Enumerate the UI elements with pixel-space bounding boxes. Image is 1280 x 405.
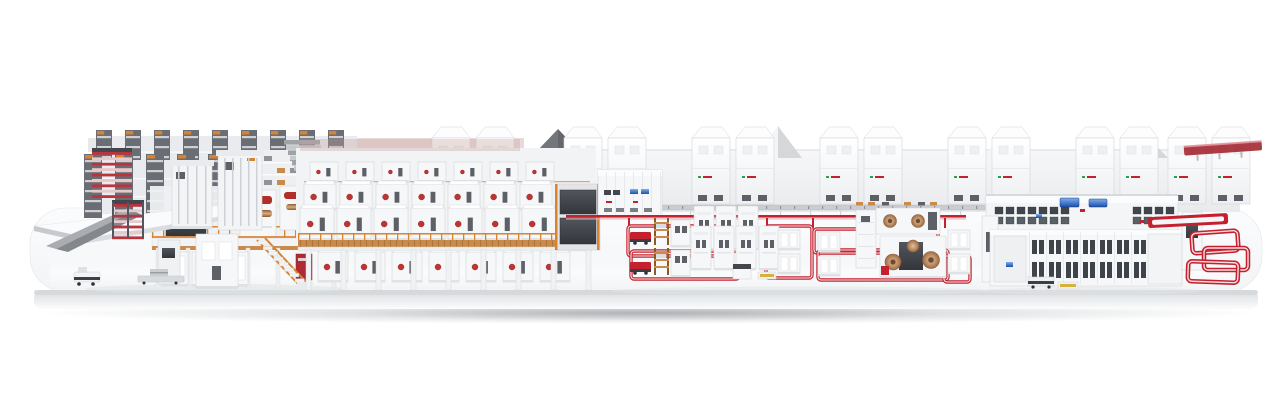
cabinet-roof (1168, 127, 1206, 138)
deck-tick (462, 240, 463, 247)
door-slot (1134, 240, 1139, 254)
module-slit (398, 168, 402, 176)
red-bank-stripe (92, 168, 132, 171)
deck-tick (468, 240, 469, 247)
rack-slat (184, 136, 198, 138)
module-slit (431, 192, 436, 203)
module-roof (306, 181, 334, 185)
cell-cabinet (818, 256, 840, 276)
cellB-mid-tower (856, 210, 876, 268)
cabinet-divider (948, 168, 986, 169)
cabinet-recess (886, 146, 895, 154)
door-slot (1056, 262, 1061, 278)
deck-tick (504, 240, 505, 247)
sled-wheel (143, 282, 146, 285)
conveyor-tick (948, 206, 949, 209)
module-roof (378, 181, 406, 185)
rack-orange-cap (178, 155, 186, 159)
rack-slat (147, 160, 163, 162)
shelf-item (264, 180, 272, 185)
railing-post (485, 233, 486, 242)
module-roof (339, 205, 369, 209)
deck-tick (360, 240, 361, 247)
agv-band (1028, 281, 1054, 284)
panel-seam (1097, 232, 1098, 284)
render-stage (0, 0, 1280, 405)
red-label (1140, 220, 1144, 223)
cell-tower (759, 226, 779, 270)
cabinet-vent (758, 195, 767, 201)
railing-post (419, 233, 420, 242)
hmi-screen-blue (641, 189, 649, 194)
cabinet-divider (1212, 168, 1250, 169)
panel-seam (1063, 232, 1064, 284)
red-bank-top-bar (92, 148, 132, 152)
panel-seam (1029, 232, 1030, 284)
module-red-valve (307, 221, 313, 227)
railing-post (364, 233, 365, 242)
module-red-valve (398, 264, 404, 270)
cabinet-seam (624, 172, 625, 214)
coil-winder-front (880, 236, 946, 278)
rack-slat (242, 146, 256, 148)
stair-step (263, 246, 272, 249)
logo-mark-red (1087, 176, 1096, 178)
walkway-post (1218, 153, 1220, 159)
window-cell (1039, 217, 1047, 224)
pallet-unit-2 (1058, 282, 1078, 289)
deck-tick (528, 240, 529, 247)
dark-panel (560, 218, 596, 244)
module-slit (542, 168, 546, 176)
module-red-valve (527, 194, 533, 200)
conveyor-tick (822, 206, 823, 209)
line-module (526, 162, 554, 182)
tower-window (861, 216, 870, 222)
deck-tick (432, 240, 433, 247)
cell-cabinet (778, 254, 800, 274)
rack-slat (147, 170, 163, 172)
finishing-back-header (986, 196, 1178, 203)
cabinet-recess (1175, 146, 1184, 154)
red-label (606, 201, 612, 203)
rack-orange-cap (329, 131, 336, 135)
panel-seam (1046, 232, 1047, 284)
module-red-valve (509, 264, 515, 270)
cabinet-roof (608, 127, 646, 138)
door-slot (1039, 262, 1044, 278)
rack-shelf-line (199, 151, 212, 153)
logo-mark-green (1082, 176, 1085, 178)
cabinet-roof (1076, 127, 1114, 138)
rack-orange-cap (242, 131, 249, 135)
support-leg (516, 250, 521, 290)
rack-shelf-line (133, 196, 146, 198)
rack-slat (213, 136, 227, 138)
cell-tower (736, 226, 756, 270)
logo-mark-red (1003, 176, 1012, 178)
red-bank-stripe (92, 179, 132, 182)
cabinet-recess (615, 146, 624, 154)
deck-tick (378, 240, 379, 247)
window-cell (1133, 217, 1141, 224)
agv-wheel (91, 282, 95, 286)
cabinet-roof (1212, 127, 1250, 138)
deck-tick (426, 240, 427, 247)
line-module (374, 208, 408, 240)
railing-post (331, 233, 332, 242)
stair-step (269, 252, 278, 255)
module-red-valve (388, 170, 392, 174)
module-red-valve (352, 170, 356, 174)
conveyor-tick (962, 206, 963, 209)
cell-tower (691, 226, 711, 270)
cabinet-recess (999, 146, 1008, 154)
logo-mark-red (1223, 176, 1232, 178)
door-slot (1141, 240, 1146, 254)
hmi-screen-blue (1060, 198, 1079, 207)
deck-tick (318, 240, 319, 247)
window-cell (1028, 217, 1036, 224)
red-pipe-drop (944, 218, 946, 228)
cabinet-recess (871, 146, 880, 154)
cabinet-vent (954, 195, 963, 201)
railing-post (518, 233, 519, 242)
door-slot (1141, 262, 1146, 278)
module-red-valve (324, 264, 330, 270)
module-red-valve (455, 194, 461, 200)
module-roof (450, 205, 480, 209)
logo-mark-red (1131, 176, 1140, 178)
deck-tick (444, 240, 445, 247)
red-bank-stripe (92, 190, 132, 193)
cabinet-vent (644, 208, 652, 212)
window-cell (1006, 207, 1014, 214)
stair-step (295, 279, 304, 282)
tower-slit (212, 266, 221, 280)
deck-tick (366, 240, 367, 247)
door-slot (1073, 262, 1078, 278)
logo-mark-green (742, 176, 745, 178)
module-base (485, 238, 519, 240)
rack-orange-cap (300, 131, 307, 135)
cabinet-body (864, 138, 902, 204)
module-red-valve (529, 221, 535, 227)
module-roof (524, 205, 554, 209)
cabinet-recess (699, 146, 708, 154)
panel-seam (1131, 232, 1132, 284)
sled-wheel (175, 282, 178, 285)
door-slot (1107, 240, 1112, 254)
deck-tick (414, 240, 415, 247)
red-bank-stripe (92, 195, 132, 198)
module-red-valve (435, 264, 441, 270)
rack-slat (97, 136, 111, 138)
cabinet-recess (1098, 146, 1107, 154)
module-slit (505, 218, 510, 231)
logo-mark-green (1218, 176, 1221, 178)
support-leg (586, 250, 591, 290)
logo-mark-green (826, 176, 829, 178)
module-red-valve (316, 170, 320, 174)
cabinet-recess (827, 146, 836, 154)
panel-seam (1080, 232, 1081, 284)
panel-seam (1114, 232, 1115, 284)
cabinet-recess (1014, 146, 1023, 154)
conveyor-tick (836, 206, 837, 209)
door-slot (1049, 240, 1054, 254)
railing-post (375, 233, 376, 242)
red-bank-post (127, 202, 129, 238)
stair-step (290, 273, 299, 276)
railing-post (298, 233, 299, 242)
railing-post (397, 233, 398, 242)
line-module (346, 162, 374, 182)
module-slit (326, 168, 330, 176)
module-slit (395, 192, 400, 203)
module-roof (342, 181, 370, 185)
module-base (374, 238, 408, 240)
cabinet-divider (1076, 168, 1114, 169)
railing-post (551, 233, 552, 242)
railing-post (408, 233, 409, 242)
module-slit (542, 218, 547, 231)
gantry-strut (196, 166, 198, 224)
support-leg (306, 250, 311, 290)
line-module (429, 252, 459, 282)
module-red-valve (418, 221, 424, 227)
rack-slat (155, 146, 169, 148)
cabinet-vent (1218, 195, 1227, 201)
gantry-strut (248, 158, 250, 226)
module-slit (470, 168, 474, 176)
orange-post (555, 184, 558, 250)
agv-wheel (77, 282, 81, 286)
door-slot (1117, 240, 1122, 254)
module-slit (506, 168, 510, 176)
railing-post (353, 233, 354, 242)
cabinet-recess (955, 146, 964, 154)
module-red-valve (361, 264, 367, 270)
cabinet-recess (630, 146, 639, 154)
logo-mark-green (954, 176, 957, 178)
shelf-item (277, 180, 285, 185)
process-line (296, 139, 600, 290)
cabinet-vent (698, 195, 707, 201)
cell-tower (714, 226, 734, 270)
module-roof (302, 205, 332, 209)
railing-post (463, 233, 464, 242)
gantry-detail (176, 172, 185, 179)
cabinet-divider (736, 168, 774, 169)
railing-post (474, 233, 475, 242)
cabinet-divider (820, 168, 858, 169)
railing-bar (298, 233, 590, 235)
module-red-valve (491, 194, 497, 200)
cabinet-seam (660, 172, 661, 214)
module-roof (522, 181, 550, 185)
finishing-line (982, 194, 1202, 289)
rack-orange-cap (155, 131, 162, 135)
cabinet-divider (692, 168, 730, 169)
red-unit (881, 266, 889, 275)
deck-tick (372, 240, 373, 247)
gantry-strut (178, 166, 180, 224)
module-slit (335, 261, 340, 274)
module-red-valve (344, 221, 350, 227)
door-slot (1124, 262, 1129, 278)
control-header (598, 170, 662, 176)
logo-mark-red (875, 176, 884, 178)
rack-orange-cap (209, 155, 217, 159)
cabinet-vent (886, 195, 895, 201)
rack-orange-cap (271, 131, 278, 135)
line-module (310, 162, 338, 182)
shelf-item (264, 156, 272, 161)
copper-coil (907, 240, 919, 252)
support-leg (341, 250, 346, 290)
railing-post (320, 233, 321, 242)
door-slot (1083, 262, 1088, 278)
cabinet-roof (992, 127, 1030, 138)
red-bank-post (142, 202, 144, 238)
conveyor-tick (808, 206, 809, 209)
railing-post (540, 233, 541, 242)
rack-slat (85, 200, 101, 202)
conveyor-tick (850, 206, 851, 209)
line-module (522, 208, 556, 240)
module-slit (467, 192, 472, 203)
cabinet-vent (714, 195, 723, 201)
logo-mark-green (870, 176, 873, 178)
cabinet-recess (1083, 146, 1092, 154)
module-slit (394, 218, 399, 231)
module-red-valve (381, 221, 387, 227)
rack-slat (271, 136, 285, 138)
rack-shelf-line (133, 178, 146, 180)
conveyor-tick (668, 206, 669, 209)
module-base (522, 238, 556, 240)
cabinet-roof (864, 127, 902, 138)
conveyor-tick (864, 206, 865, 209)
red-bank-stripe (92, 157, 132, 160)
logo-mark-green (698, 176, 701, 178)
railing-post (452, 233, 453, 242)
line-module (454, 162, 482, 182)
deck-tick (336, 240, 337, 247)
module-slit (320, 218, 325, 231)
deck-tick (450, 240, 451, 247)
deck-tick (516, 240, 517, 247)
rack-orange-cap (126, 131, 133, 135)
line-module (418, 162, 446, 182)
conveyor-cargo (904, 202, 911, 206)
module-roof (487, 205, 517, 209)
rack-slat (126, 146, 140, 148)
deck-tick (498, 240, 499, 247)
deck-tick (492, 240, 493, 247)
cabinet-vent (1234, 195, 1243, 201)
cabinet-vent (1190, 195, 1199, 201)
door-slot (1100, 262, 1105, 278)
door-slot (1124, 240, 1129, 254)
module-roof (450, 181, 478, 185)
cabinet-vent (842, 195, 851, 201)
cabinet-recess (1127, 146, 1136, 154)
deck-tick (480, 240, 481, 247)
rack-slat (97, 146, 111, 148)
rack-slat (271, 146, 285, 148)
railing-post (529, 233, 530, 242)
red-bank-stripe (92, 174, 132, 177)
railing-post (386, 233, 387, 242)
railing-post (342, 233, 343, 242)
door-slot (1134, 262, 1139, 278)
red-label (633, 201, 638, 203)
door-slot (1039, 240, 1044, 254)
cabinet-divider (1168, 168, 1206, 169)
hmi-screen-blue-small (1036, 214, 1042, 218)
line-module (411, 208, 445, 240)
cabinet-body (820, 138, 858, 204)
cell-cabinet (778, 230, 800, 250)
floor-reflection (980, 287, 1200, 295)
rack-slat (147, 180, 163, 182)
side-column-window (162, 248, 175, 258)
rack-orange-cap (213, 131, 220, 135)
red-label (1080, 209, 1085, 212)
cabinet-body (692, 138, 730, 204)
door-slot (1049, 262, 1054, 278)
agv-band (74, 277, 100, 280)
cabinet-recess (1142, 146, 1151, 154)
logo-mark-red (747, 176, 756, 178)
railing-post (507, 233, 508, 242)
walkway-post (1240, 152, 1242, 158)
logo-mark-red (703, 176, 712, 178)
rack-slat (155, 136, 169, 138)
rack-slat (213, 146, 227, 148)
deck-tick (510, 240, 511, 247)
stair-step (258, 241, 267, 244)
module-red-valve (424, 170, 428, 174)
cell-cabinet (948, 254, 970, 274)
railing-post (441, 233, 442, 242)
deck-tick (390, 240, 391, 247)
cabinet-vent (604, 208, 612, 212)
support-leg (446, 250, 451, 290)
rack-orange-cap (184, 131, 191, 135)
stair-step (285, 268, 294, 271)
agv-wheel (1031, 285, 1034, 288)
logo-mark-green (1174, 176, 1177, 178)
cabinet-vent (742, 195, 751, 201)
door-slot (1066, 240, 1071, 254)
door-slot (1056, 240, 1061, 254)
conveyor-tick (976, 206, 977, 209)
agv-head (78, 267, 87, 273)
deck-tick (348, 240, 349, 247)
dark-lid-box (733, 264, 751, 279)
cabinet-seam (651, 172, 652, 214)
module-base (300, 238, 334, 240)
module-slit (431, 218, 436, 231)
dark-panel (560, 190, 596, 214)
module-roof (413, 205, 443, 209)
cabinet-roof (476, 127, 514, 138)
agv-wheel (1047, 285, 1050, 288)
control-cabinets (598, 170, 662, 216)
